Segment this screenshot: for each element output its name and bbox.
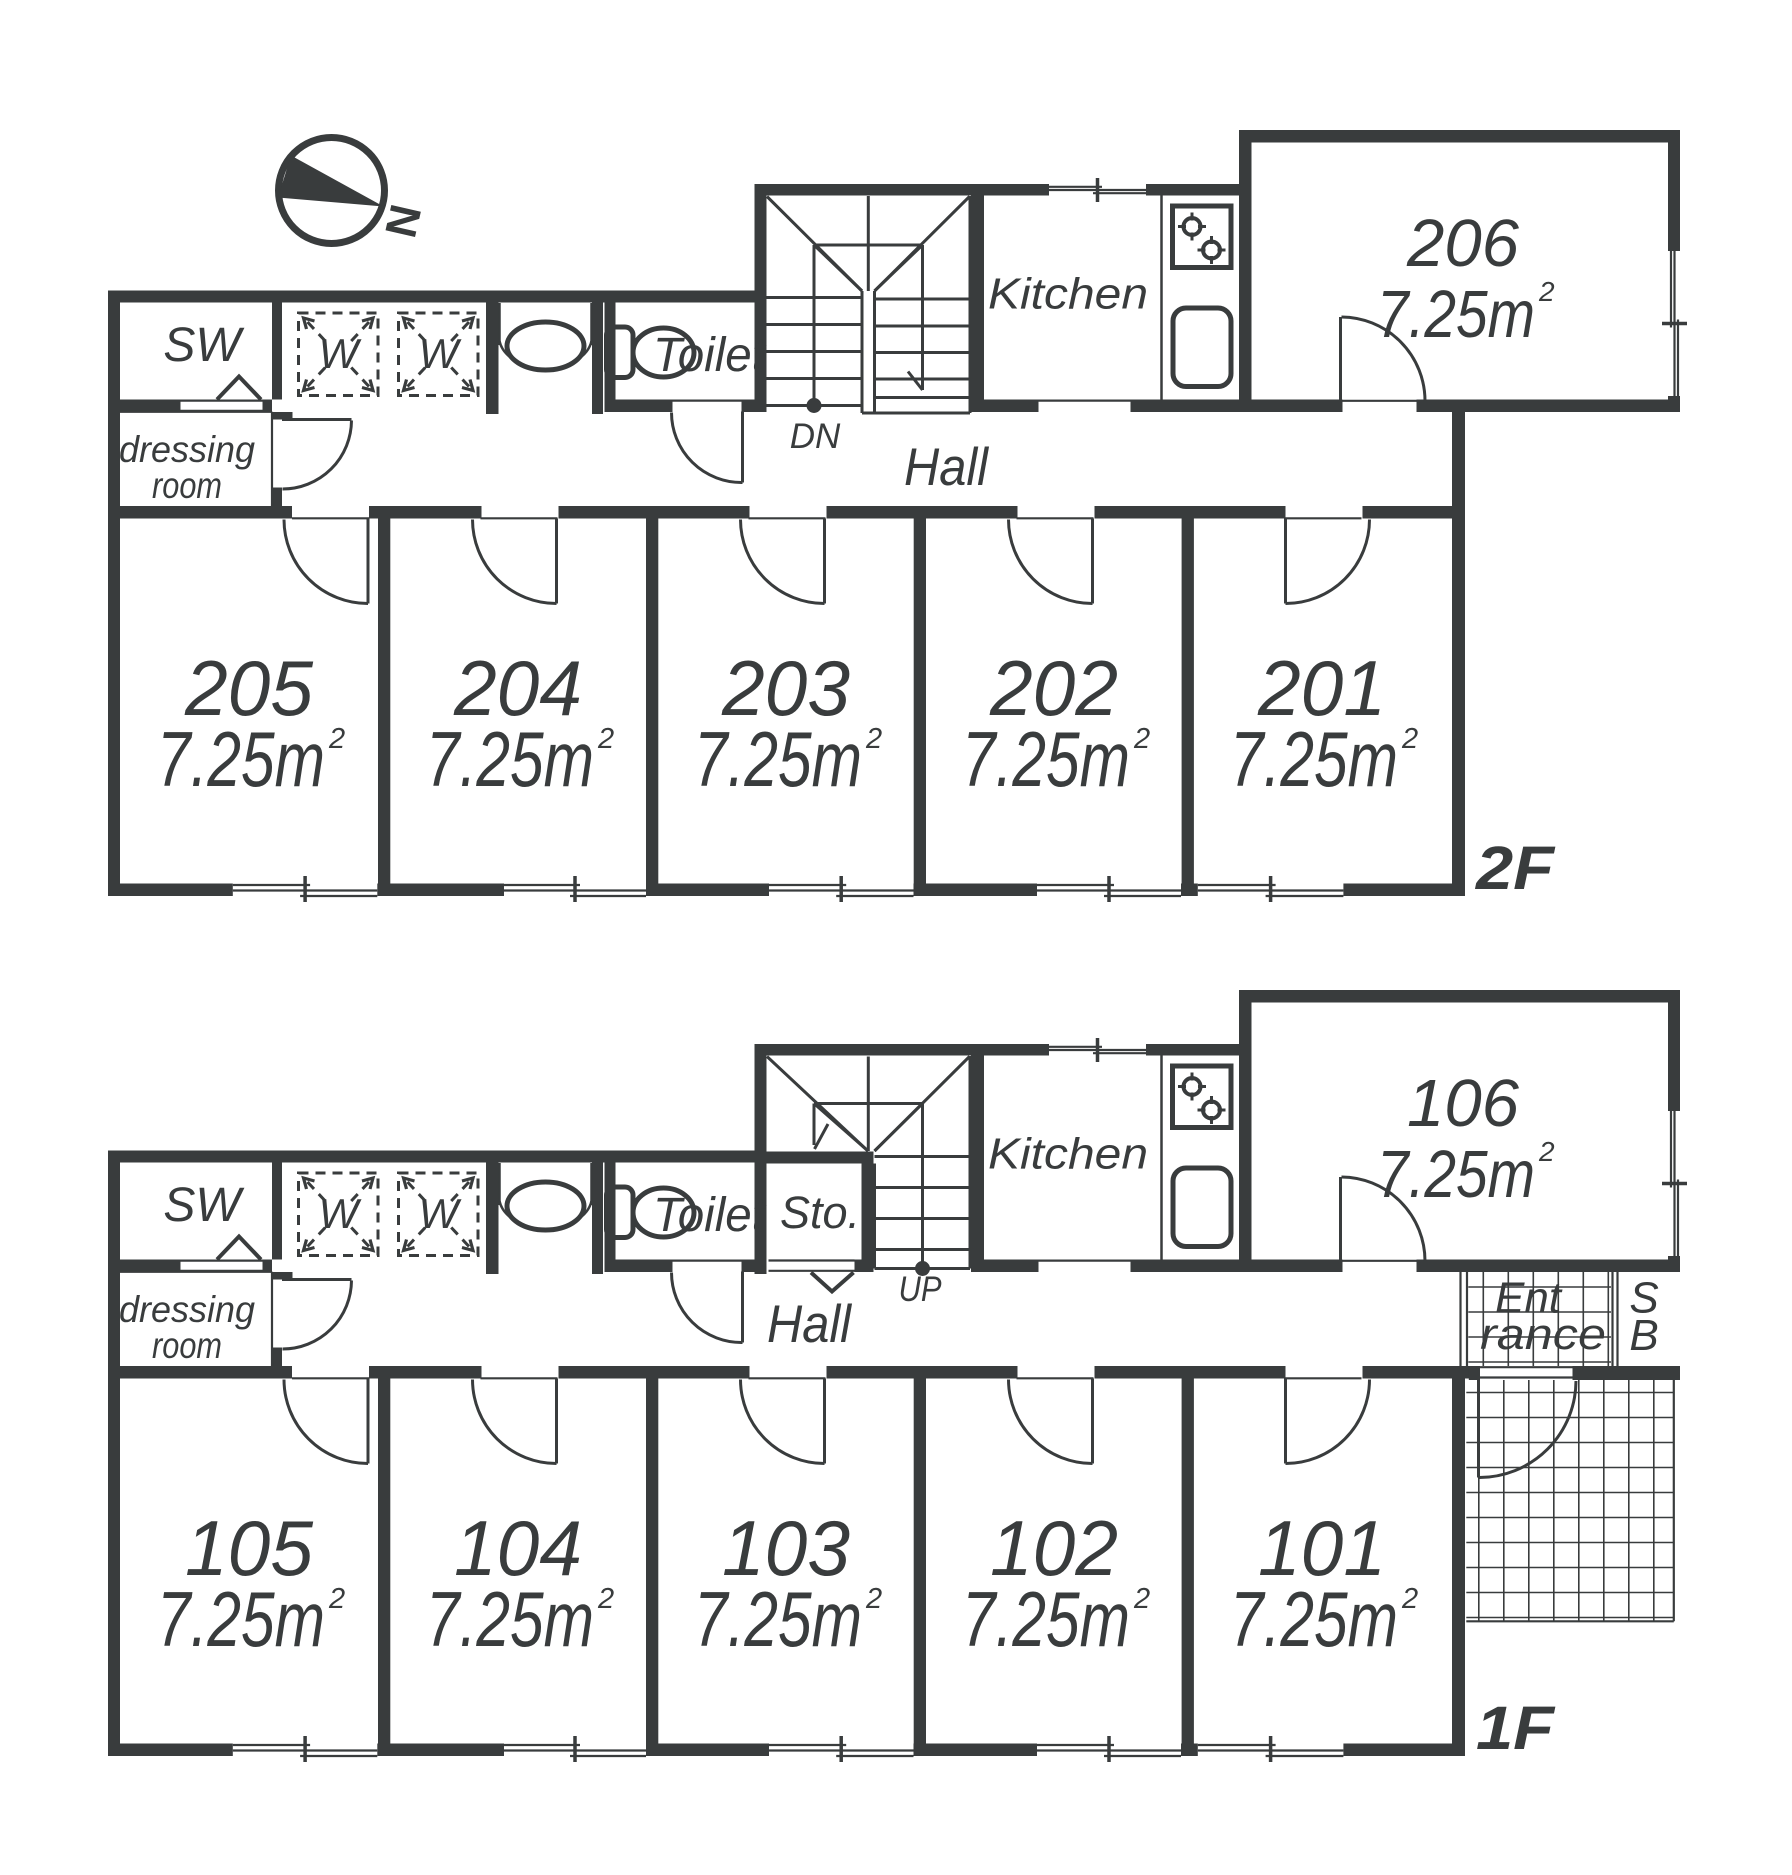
svg-text:106: 106 bbox=[1407, 1066, 1520, 1141]
svg-text:2F: 2F bbox=[1475, 834, 1556, 902]
svg-text:Sto.: Sto. bbox=[780, 1187, 860, 1238]
svg-text:Toilet: Toilet bbox=[653, 1189, 767, 1242]
svg-text:W: W bbox=[319, 330, 362, 377]
svg-text:2: 2 bbox=[865, 723, 882, 755]
svg-text:room: room bbox=[152, 465, 222, 506]
svg-text:W: W bbox=[419, 330, 462, 377]
svg-text:2: 2 bbox=[865, 1583, 882, 1615]
svg-text:Kitchen: Kitchen bbox=[988, 270, 1148, 319]
svg-text:2: 2 bbox=[328, 1583, 345, 1615]
svg-text:2: 2 bbox=[1401, 1583, 1418, 1615]
svg-text:B: B bbox=[1629, 1311, 1658, 1360]
svg-text:W: W bbox=[419, 1190, 462, 1237]
svg-text:2: 2 bbox=[1538, 1136, 1555, 1167]
svg-text:2: 2 bbox=[1538, 276, 1555, 307]
svg-text:2: 2 bbox=[1401, 723, 1418, 755]
svg-text:7.25m: 7.25m bbox=[426, 1575, 594, 1663]
svg-text:7.25m: 7.25m bbox=[1377, 1137, 1535, 1212]
svg-text:7.25m: 7.25m bbox=[157, 715, 325, 803]
svg-text:Toilet: Toilet bbox=[653, 329, 767, 382]
svg-text:2: 2 bbox=[328, 723, 345, 755]
svg-text:206: 206 bbox=[1406, 206, 1520, 281]
svg-text:7.25m: 7.25m bbox=[694, 715, 862, 803]
svg-text:7.25m: 7.25m bbox=[1230, 1575, 1398, 1663]
svg-text:Kitchen: Kitchen bbox=[988, 1130, 1148, 1179]
svg-text:SW: SW bbox=[163, 1179, 245, 1232]
svg-text:dressing: dressing bbox=[119, 1289, 255, 1330]
svg-text:room: room bbox=[152, 1325, 222, 1366]
svg-text:2: 2 bbox=[597, 1583, 614, 1615]
svg-text:7.25m: 7.25m bbox=[426, 715, 594, 803]
svg-text:SW: SW bbox=[163, 319, 245, 372]
svg-text:dressing: dressing bbox=[119, 429, 255, 470]
svg-text:7.25m: 7.25m bbox=[694, 1575, 862, 1663]
svg-text:1F: 1F bbox=[1476, 1694, 1556, 1762]
svg-text:7.25m: 7.25m bbox=[962, 1575, 1130, 1663]
svg-text:7.25m: 7.25m bbox=[1377, 277, 1535, 352]
svg-text:Hall: Hall bbox=[767, 1295, 852, 1354]
svg-text:7.25m: 7.25m bbox=[962, 715, 1130, 803]
svg-text:rance: rance bbox=[1480, 1310, 1606, 1359]
svg-text:2: 2 bbox=[1133, 1583, 1150, 1615]
svg-text:Hall: Hall bbox=[904, 438, 989, 497]
svg-text:2: 2 bbox=[1133, 723, 1150, 755]
svg-text:W: W bbox=[319, 1190, 362, 1237]
svg-text:UP: UP bbox=[899, 1270, 943, 1309]
svg-text:2: 2 bbox=[597, 723, 614, 755]
svg-text:7.25m: 7.25m bbox=[157, 1575, 325, 1663]
svg-text:7.25m: 7.25m bbox=[1230, 715, 1398, 803]
svg-text:DN: DN bbox=[790, 417, 841, 456]
